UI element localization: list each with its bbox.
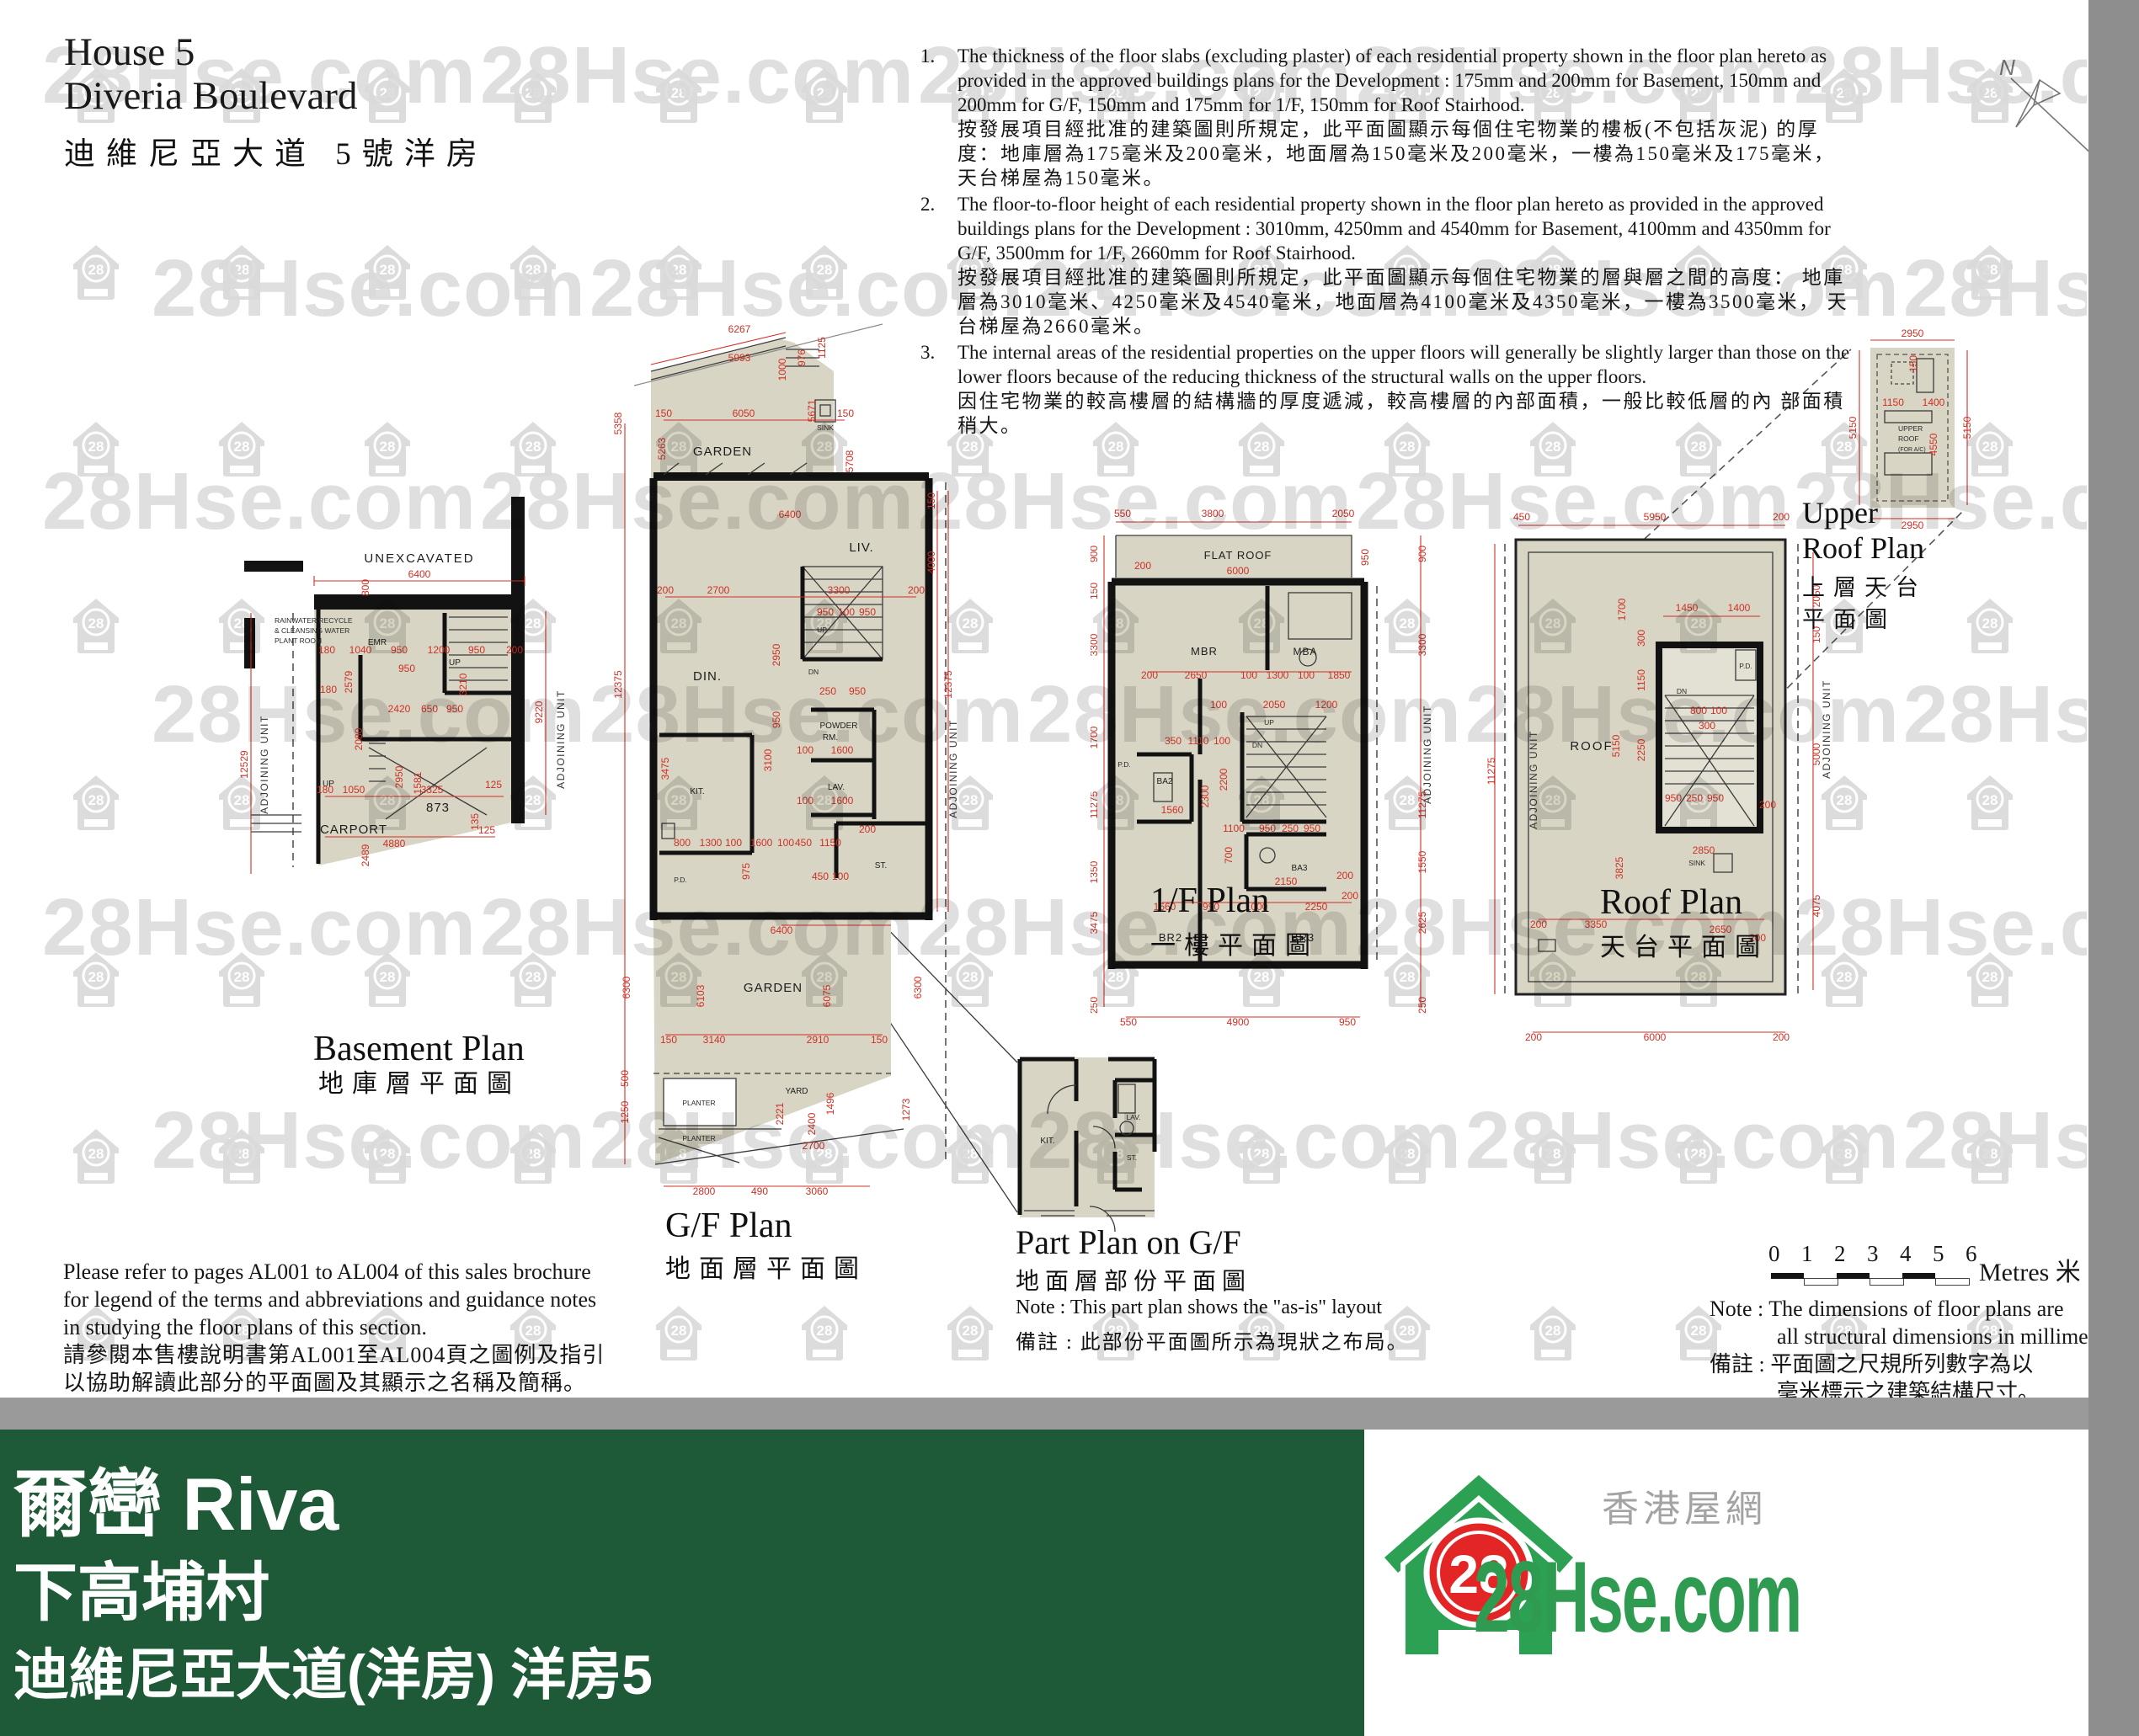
ur-plan-title-1: Upper <box>1802 495 1878 530</box>
svg-text:28: 28 <box>1691 1146 1707 1162</box>
svg-text:28: 28 <box>380 1146 396 1162</box>
roof-plan-drawing: ROOF DN P.D. SINK ADJOINING UNIT ADJOINI… <box>1486 502 1848 1057</box>
dim-label: 150 <box>660 1034 677 1046</box>
dim-label: 150 <box>655 407 672 419</box>
dim-label: 2700 <box>803 1140 825 1152</box>
dim-label: 200 <box>657 584 674 596</box>
dim-label: 11275 <box>1091 791 1100 818</box>
svg-text:28: 28 <box>380 439 396 455</box>
watermark-house-icon: 28 <box>654 1304 703 1361</box>
room-label: KIT. <box>690 787 704 796</box>
dimension-note-zh-1: 備註 : 平面圖之尺規所列數字為以 <box>1710 1350 2115 1378</box>
dim-label: 950 <box>1304 823 1320 834</box>
dim-label: 2221 <box>774 1102 786 1125</box>
dim-label: 6300 <box>621 976 632 998</box>
dim-label: 950 <box>1707 792 1724 804</box>
svg-text:28: 28 <box>88 615 104 631</box>
watermark-house-icon: 28 <box>800 1304 849 1361</box>
adjoining-unit-label: ADJOINING UNIT <box>1821 679 1832 779</box>
watermark-house-icon: 28 <box>1237 1127 1286 1185</box>
dim-label: 100 <box>1210 699 1227 711</box>
dim-label: 2050 <box>1263 699 1286 711</box>
dim-label: 5358 <box>613 412 624 434</box>
watermark-house-icon: 28 <box>363 243 412 301</box>
svg-text:28: 28 <box>88 439 104 455</box>
dim-label: 2950 <box>393 765 405 788</box>
dim-label: 2250 <box>1305 901 1328 913</box>
room-label: BA3 <box>1292 864 1308 873</box>
dim-label: 2950 <box>1902 327 1924 339</box>
dim-label: 900 <box>1091 546 1100 562</box>
room-label: RM. <box>823 733 838 743</box>
dim-label: 150 <box>871 1034 888 1046</box>
footer-banner: 爾巒 Riva 下高埔村 迪維尼亞大道(洋房) 洋房5 <box>0 1430 1364 1736</box>
dim-label: 1273 <box>900 1098 912 1121</box>
watermark-house-icon: 28 <box>1528 1127 1577 1185</box>
watermark-text: 28Hse.com <box>152 242 586 335</box>
scale-tick: 4 <box>1900 1241 1912 1267</box>
gf-plan-title: G/F Plan <box>665 1206 792 1246</box>
dim-label: 1400 <box>1923 397 1945 408</box>
dim-label: 200 <box>1134 560 1151 572</box>
dim-label: 250 <box>1091 997 1100 1014</box>
ff-plan-title-zh: 一樓平面圖 <box>1150 924 1319 961</box>
dim-label: 150 <box>1091 583 1100 599</box>
watermark-text: 28Hse.com <box>1903 668 2087 761</box>
dim-label: 2950 <box>1902 519 1924 531</box>
note-2-text: The floor-to-floor height of each reside… <box>957 192 1854 338</box>
scale-unit-label: Metres 米 <box>1979 1251 2081 1288</box>
dim-label: 800 <box>1690 705 1707 716</box>
dim-label: 700 <box>1223 847 1235 864</box>
dim-label: 2420 <box>388 703 411 715</box>
dim-label: 2800 <box>693 1185 716 1197</box>
dim-label: 6400 <box>408 568 431 580</box>
room-label: MBA <box>1293 646 1317 658</box>
room-label: YARD <box>785 1087 808 1096</box>
dim-label: 150 <box>837 407 854 419</box>
svg-text:28: 28 <box>1545 439 1561 455</box>
dim-label: 950 <box>771 711 782 728</box>
house-title-en-1: House 5 <box>64 30 488 74</box>
part-plan-drawing: KIT. LAV. ST. <box>1016 1051 1164 1240</box>
room-label: ROOF <box>1898 434 1919 443</box>
room-label: UP <box>1264 718 1274 727</box>
svg-text:28: 28 <box>1400 1146 1416 1162</box>
ur-plan-title-2: Roof Plan <box>1802 530 1924 566</box>
dim-label: 1125 <box>816 337 828 359</box>
dim-label: 200 <box>1525 1031 1542 1043</box>
dim-label: 450 <box>795 837 812 849</box>
dim-label: 1050 <box>343 784 365 796</box>
room-label: UP <box>449 658 461 668</box>
room-label: PLANTER <box>682 1099 715 1107</box>
scale-tick: 5 <box>1933 1241 1944 1267</box>
watermark-house-icon: 28 <box>363 420 412 477</box>
dim-label: 3800 <box>1202 508 1224 519</box>
watermark-text: 28Hse.com <box>1903 1094 2087 1187</box>
dim-label: 950 <box>468 644 485 656</box>
gf-plan-title-zh: 地面層平面圖 <box>665 1248 867 1285</box>
svg-text:28: 28 <box>817 85 833 101</box>
dim-label: 200 <box>1759 799 1776 811</box>
room-label: P.D. <box>1118 760 1130 769</box>
gf-plan-drawing: GARDEN SINK LIV. DIN. UP DN POWDER RM. L… <box>613 322 984 1291</box>
room-label: P.D. <box>674 876 686 884</box>
room-label: GARDEN <box>744 981 803 995</box>
dim-label: 1450 <box>1676 602 1699 614</box>
dim-label: 6400 <box>771 924 793 936</box>
watermark-house-icon: 28 <box>72 774 120 831</box>
watermark-house-icon: 28 <box>800 67 849 124</box>
svg-text:28: 28 <box>234 969 250 985</box>
dim-label: 3210 <box>457 673 469 695</box>
dim-label: 12375 <box>613 670 624 699</box>
svg-text:28: 28 <box>671 262 687 278</box>
ur-plan-title-zh-1: 上層天台 <box>1802 569 1927 602</box>
dim-label: 11275 <box>1416 791 1428 818</box>
dim-label: 150 <box>1907 355 1919 372</box>
dim-label: 1350 <box>1091 860 1100 883</box>
dim-label: 1700 <box>1616 598 1628 620</box>
dim-label: 100 <box>838 606 855 618</box>
watermark-house-icon: 28 <box>1966 597 2014 654</box>
dim-label: 976 <box>796 349 808 366</box>
roof-plan-title-zh: 天台平面圖 <box>1600 926 1768 963</box>
watermark-house-icon: 28 <box>1674 1127 1723 1185</box>
watermark-house-icon: 28 <box>509 243 557 301</box>
dim-label: 135 <box>469 813 481 830</box>
part-plan-title: Part Plan on G/F <box>1016 1222 1241 1262</box>
scale-tick: 0 <box>1768 1241 1780 1267</box>
basement-plan-title-zh: 地庫層平面圖 <box>318 1062 520 1100</box>
dim-label: 100 <box>797 795 813 807</box>
room-label: DIN. <box>693 669 722 684</box>
scale-tick: 2 <box>1834 1241 1846 1267</box>
dim-label: 100 <box>725 837 742 849</box>
svg-text:28: 28 <box>88 262 104 278</box>
watermark-house-icon: 28 <box>363 951 412 1008</box>
dim-label: 125 <box>478 824 495 836</box>
dimension-note-en-1: Note : The dimensions of floor plans are <box>1710 1295 2115 1323</box>
dim-label: 100 <box>832 871 849 882</box>
svg-text:28: 28 <box>671 85 687 101</box>
dim-label: 1100 <box>1223 823 1245 834</box>
room-label: (FOR A/C) <box>1898 447 1926 453</box>
dim-label: 2910 <box>807 1034 829 1046</box>
watermark-house-icon: 28 <box>946 1304 995 1361</box>
watermark-house-icon: 28 <box>509 420 557 477</box>
dim-label: 6075 <box>821 984 833 1007</box>
dim-label: 150 <box>925 493 937 509</box>
dim-label: 2250 <box>1635 738 1647 761</box>
dim-label: 250 <box>819 685 836 697</box>
dim-label: 3475 <box>659 757 671 780</box>
page-header: House 5 Diveria Boulevard 迪維尼亞大道 5號洋房 <box>64 30 488 173</box>
note-2: 2. The floor-to-floor height of each res… <box>920 192 1854 338</box>
dim-label: 3100 <box>762 748 774 771</box>
page-edge-bottom <box>0 1398 2088 1430</box>
dim-label: 1200 <box>1315 699 1338 711</box>
dim-label: 1150 <box>1882 397 1904 408</box>
dim-label: 3300 <box>1091 633 1100 656</box>
dim-label: 4075 <box>1811 894 1822 917</box>
room-label: LIV. <box>849 541 873 555</box>
dim-label: 1150 <box>1635 669 1647 691</box>
room-label: DN <box>808 668 819 676</box>
dim-label: 3825 <box>1614 856 1625 879</box>
dim-label: 6050 <box>733 407 755 419</box>
dim-label: 2050 <box>1332 508 1355 519</box>
dim-label: 1400 <box>1728 602 1751 614</box>
footer-logo-area: 28 香港屋網 28Hse.com <box>1364 1430 2088 1736</box>
watermark-house-icon: 28 <box>72 1127 120 1185</box>
watermark-house-icon: 28 <box>363 1127 412 1185</box>
dim-label: 200 <box>506 644 523 656</box>
dim-label: 4550 <box>1928 433 1939 455</box>
dim-label: 950 <box>1665 792 1682 804</box>
svg-text:28: 28 <box>525 262 541 278</box>
svg-text:28: 28 <box>88 969 104 985</box>
ff-plan-title: 1/F Plan <box>1150 881 1269 921</box>
room-label: DN <box>1677 687 1687 695</box>
note-3-text: The internal areas of the residential pr… <box>957 340 1854 438</box>
watermark-house-icon: 28 <box>1966 243 2014 301</box>
dim-label: 180 <box>320 684 337 695</box>
room-label: & CLEANSING WATER <box>275 626 349 635</box>
dim-label: 1300 <box>700 837 723 849</box>
dimension-note-en-2: all structural dimensions in millimeter. <box>1777 1323 2115 1350</box>
dim-label: 2650 <box>1185 669 1208 681</box>
svg-text:28: 28 <box>1982 439 1998 455</box>
svg-text:28: 28 <box>234 262 250 278</box>
dim-label: 6400 <box>779 509 802 520</box>
svg-text:28: 28 <box>380 969 396 985</box>
dim-label: 950 <box>446 703 463 715</box>
dim-label: 100 <box>797 744 813 756</box>
dim-label: 2300 <box>1199 785 1211 807</box>
dim-label: 1600 <box>831 744 854 756</box>
svg-text:28: 28 <box>1982 615 1998 631</box>
room-label: SINK <box>817 423 834 432</box>
dim-label: 200 <box>1773 511 1790 523</box>
dim-label: 100 <box>1240 669 1257 681</box>
note-1-zh: 按發展項目經批准的建築圖則所規定，此平面圖顯示每個住宅物業的樓板(不包括灰泥) … <box>957 117 1854 190</box>
house-title-en-2: Diveria Boulevard <box>64 74 488 118</box>
svg-text:28: 28 <box>1254 1146 1270 1162</box>
svg-text:28: 28 <box>1691 1323 1707 1339</box>
dim-label: 5708 <box>844 450 856 472</box>
dim-label: 6300 <box>912 976 924 998</box>
dim-label: 100 <box>1214 735 1230 747</box>
dim-label: 1560 <box>1161 804 1184 816</box>
room-label: P.D. <box>1739 662 1752 670</box>
watermark-house-icon: 28 <box>72 951 120 1008</box>
dim-label: 200 <box>859 823 876 835</box>
part-plan-note-en: Note : This part plan shows the "as-is" … <box>1016 1297 1382 1319</box>
dim-label: 4900 <box>1227 1016 1250 1028</box>
room-label: CARPORT <box>320 823 387 837</box>
dim-label: 550 <box>1120 1016 1137 1028</box>
room-label: UNEXCAVATED <box>364 551 474 566</box>
dim-label: 950 <box>817 606 834 618</box>
dim-label: 6000 <box>1644 1031 1667 1043</box>
adjoining-unit-label: ADJOINING UNIT <box>555 690 567 789</box>
watermark-house-icon: 28 <box>1966 774 2014 831</box>
scale-tick: 6 <box>1966 1241 1977 1267</box>
room-label: UPPER <box>1898 424 1923 433</box>
note-2-number: 2. <box>920 192 957 338</box>
room-label: ROOF <box>1570 739 1613 754</box>
watermark-text: 28Hse.com <box>152 1094 586 1187</box>
watermark-house-icon: 28 <box>72 420 120 477</box>
ff-plan-drawing: FLAT ROOF MBR MBA BA2 BA3 BR2 BR3 P.D. U… <box>1091 502 1438 1045</box>
adjoining-unit-label: ADJOINING UNIT <box>259 715 270 814</box>
dim-label: 5950 <box>1644 511 1667 523</box>
watermark-house-icon: 28 <box>1966 1127 2014 1185</box>
note-2-en: The floor-to-floor height of each reside… <box>957 194 1831 264</box>
dim-label: 6000 <box>1227 565 1250 577</box>
dim-label: 100 <box>1710 705 1727 716</box>
dim-label: 950 <box>1339 1016 1356 1028</box>
dim-label: 300 <box>1699 720 1715 732</box>
dim-label: 800 <box>360 579 371 596</box>
brochure-page: House 5 Diveria Boulevard 迪維尼亞大道 5號洋房 1.… <box>0 0 2139 1736</box>
note-2-zh: 按發展項目經批准的建築圖則所規定，此平面圖顯示每個住宅物業的層與層之間的高度： … <box>957 265 1854 338</box>
svg-text:28: 28 <box>1400 439 1416 455</box>
dim-label: 900 <box>1416 546 1428 562</box>
basement-plan-drawing: UNEXCAVATED RAINWATER RECYCLE & CLEANSIN… <box>234 487 579 912</box>
compass-n-label: N <box>1999 55 2015 80</box>
watermark-house-icon: 28 <box>800 243 849 301</box>
note-3-zh: 因住宅物業的較高樓層的結構牆的厚度遞減，較高樓層的內部面積，一般比較低層的內 部… <box>957 389 1854 438</box>
dim-label: 5150 <box>1610 734 1622 757</box>
dim-label: 1600 <box>750 837 773 849</box>
dim-label: 1581 <box>412 771 424 794</box>
dim-label: 3475 <box>1091 911 1100 934</box>
dim-label: 1600 <box>831 795 854 807</box>
dim-label: 2400 <box>806 1112 818 1135</box>
part-plan-title-zh: 地面層部份平面圖 <box>1016 1263 1251 1297</box>
watermark-house-icon: 28 <box>1820 1127 1869 1185</box>
svg-text:28: 28 <box>1254 439 1270 455</box>
dim-label: 300 <box>1635 630 1647 647</box>
dim-label: 2489 <box>360 844 371 866</box>
dim-label: 2150 <box>1275 876 1298 887</box>
dim-label: 2700 <box>707 584 730 596</box>
dim-label: 3300 <box>828 584 851 596</box>
development-name: 爾巒 Riva <box>13 1445 339 1552</box>
dim-label: 800 <box>674 837 691 849</box>
dim-label: 950 <box>398 663 415 674</box>
note-3-en: The internal areas of the residential pr… <box>957 342 1849 387</box>
watermark-house-icon: 28 <box>217 1127 266 1185</box>
dim-label: 1000 <box>776 358 788 381</box>
dim-label: 5993 <box>728 352 751 364</box>
dim-label: 5150 <box>1849 416 1859 439</box>
watermark-house-icon: 28 <box>1528 1304 1577 1361</box>
svg-text:28: 28 <box>963 1323 979 1339</box>
house-title-zh: 迪維尼亞大道 5號洋房 <box>64 128 488 173</box>
watermark-text: 28Hse.com <box>1465 1094 1900 1187</box>
svg-text:28: 28 <box>525 439 541 455</box>
adjoining-unit-label: ADJOINING UNIT <box>1422 705 1433 804</box>
watermark-house-icon: 28 <box>1383 1127 1432 1185</box>
room-label: PLANTER <box>682 1134 715 1142</box>
svg-text:28: 28 <box>380 262 396 278</box>
dim-label: 180 <box>318 644 335 656</box>
svg-text:28: 28 <box>1982 969 1998 985</box>
dim-label: 3140 <box>703 1034 726 1046</box>
dim-label: 1496 <box>824 1092 836 1115</box>
room-label: ST. <box>1127 1153 1137 1162</box>
watermark-house-icon: 28 <box>217 951 266 1008</box>
watermark-text: 28Hse.com <box>1903 242 2087 335</box>
dim-label: 1700 <box>1091 726 1100 748</box>
dim-label: 200 <box>908 584 925 596</box>
dim-label: 975 <box>740 863 752 880</box>
watermark-house-icon: 28 <box>509 951 557 1008</box>
note-1: 1. The thickness of the floor slabs (exc… <box>920 44 1854 190</box>
dim-label: 12375 <box>942 670 954 699</box>
svg-text:28: 28 <box>88 792 104 808</box>
dim-label: 350 <box>1165 735 1182 747</box>
dim-label: 450 <box>812 871 829 882</box>
dim-label: 200 <box>1530 919 1547 930</box>
logo-site-zh: 香港屋網 <box>1602 1478 1767 1532</box>
legend-note-en: Please refer to pages AL001 to AL004 of … <box>63 1258 615 1341</box>
svg-text:28: 28 <box>525 1146 541 1162</box>
dim-label: 3300 <box>1416 633 1428 656</box>
dim-label: 5671 <box>806 399 818 422</box>
dim-label: 1550 <box>1416 850 1428 873</box>
unit-description: 迪維尼亞大道(洋房) 洋房5 <box>13 1630 653 1711</box>
svg-text:28: 28 <box>234 1146 250 1162</box>
dim-label: 950 <box>391 644 408 656</box>
logo-site-name: 28Hse.com <box>1474 1539 1800 1655</box>
dim-label: 3060 <box>806 1185 829 1197</box>
svg-text:28: 28 <box>1108 439 1124 455</box>
scale-tick: 1 <box>1801 1241 1813 1267</box>
svg-text:28: 28 <box>817 1323 833 1339</box>
dim-label: 100 <box>777 837 794 849</box>
room-label: PLANT ROOM <box>275 636 322 645</box>
dim-label: 1040 <box>349 644 372 656</box>
watermark-house-icon: 28 <box>217 420 266 477</box>
dim-label: 950 <box>859 606 876 618</box>
dim-label: 200 <box>1342 890 1358 902</box>
dim-label: 200 <box>1336 870 1353 881</box>
dim-label: 1300 <box>1267 669 1289 681</box>
dim-label: 250 <box>1416 997 1428 1014</box>
room-label: DN <box>1252 741 1262 749</box>
room-label: ST. <box>875 861 887 871</box>
svg-text:28: 28 <box>525 85 541 101</box>
dim-label: 250 <box>1282 823 1299 834</box>
dim-label: 950 <box>1359 549 1371 566</box>
dim-label: 1850 <box>1328 669 1351 681</box>
dim-label: 2579 <box>343 670 355 693</box>
dim-label: 9220 <box>533 700 545 723</box>
room-label: 873 <box>426 801 450 815</box>
svg-text:28: 28 <box>525 969 541 985</box>
room-label: LAV. <box>828 783 845 792</box>
legend-note: Please refer to pages AL001 to AL004 of … <box>63 1258 615 1397</box>
watermark-house-icon: 28 <box>217 243 266 301</box>
dim-label: 11275 <box>1486 757 1497 785</box>
dim-label: 4880 <box>383 838 406 849</box>
dim-label: 650 <box>421 703 438 715</box>
